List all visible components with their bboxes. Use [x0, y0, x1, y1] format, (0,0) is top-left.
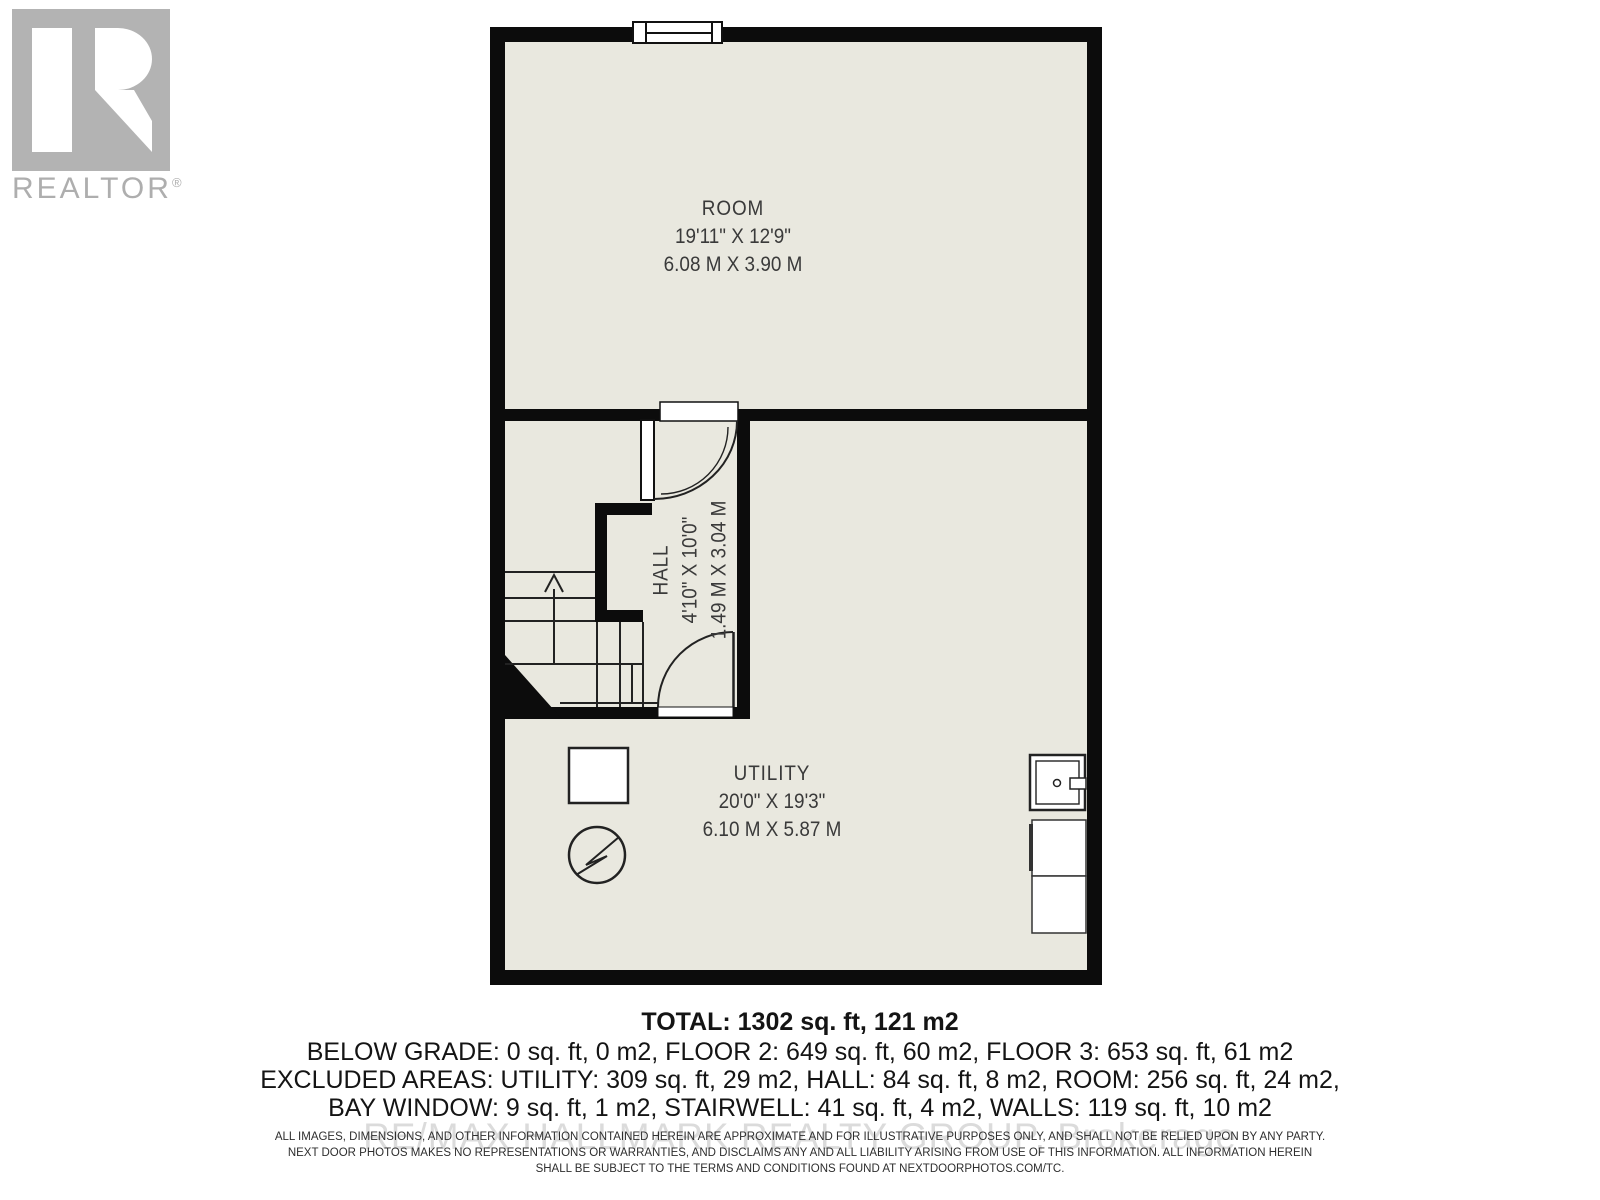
- disclaimer-line-1: ALL IMAGES, DIMENSIONS, AND OTHER INFORM…: [0, 1131, 1600, 1143]
- utility-dim-imperial: 20'0" X 19'3": [703, 788, 842, 816]
- utility-name: UTILITY: [703, 760, 842, 788]
- room-dim-metric: 6.08 M X 3.90 M: [664, 251, 803, 279]
- disclaimer-line-2: NEXT DOOR PHOTOS MAKES NO REPRESENTATION…: [0, 1147, 1600, 1159]
- excluded-areas-line: EXCLUDED AREAS: UTILITY: 309 sq. ft, 29 …: [0, 1066, 1600, 1095]
- utility-dim-metric: 6.10 M X 5.87 M: [703, 816, 842, 844]
- room-name: ROOM: [664, 195, 803, 223]
- utility-label: UTILITY 20'0" X 19'3" 6.10 M X 5.87 M: [703, 760, 842, 844]
- disclaimer-line-3: SHALL BE SUBJECT TO THE TERMS AND CONDIT…: [0, 1163, 1600, 1175]
- hall-dim-metric: 1.49 M X 3.04 M: [705, 501, 734, 640]
- total-area-line: TOTAL: 1302 sq. ft, 121 m2: [0, 1008, 1600, 1037]
- hall-label: HALL 4'10" X 10'0" 1.49 M X 3.04 M: [647, 501, 734, 640]
- floors-area-line: BELOW GRADE: 0 sq. ft, 0 m2, FLOOR 2: 64…: [0, 1038, 1600, 1067]
- bay-window: [633, 22, 722, 43]
- room-dim-imperial: 19'11" X 12'9": [664, 223, 803, 251]
- floor-plan-page: REALTOR®: [0, 0, 1600, 1200]
- fixture-box: [569, 748, 628, 803]
- hall-dim-imperial: 4'10" X 10'0": [676, 501, 705, 640]
- room-label: ROOM 19'11" X 12'9" 6.08 M X 3.90 M: [664, 195, 803, 279]
- hall-name: HALL: [647, 501, 676, 640]
- stacked-units: [1029, 820, 1086, 933]
- furnace-appliance: [1030, 755, 1086, 810]
- excluded-areas-line-2: BAY WINDOW: 9 sq. ft, 1 m2, STAIRWELL: 4…: [0, 1094, 1600, 1123]
